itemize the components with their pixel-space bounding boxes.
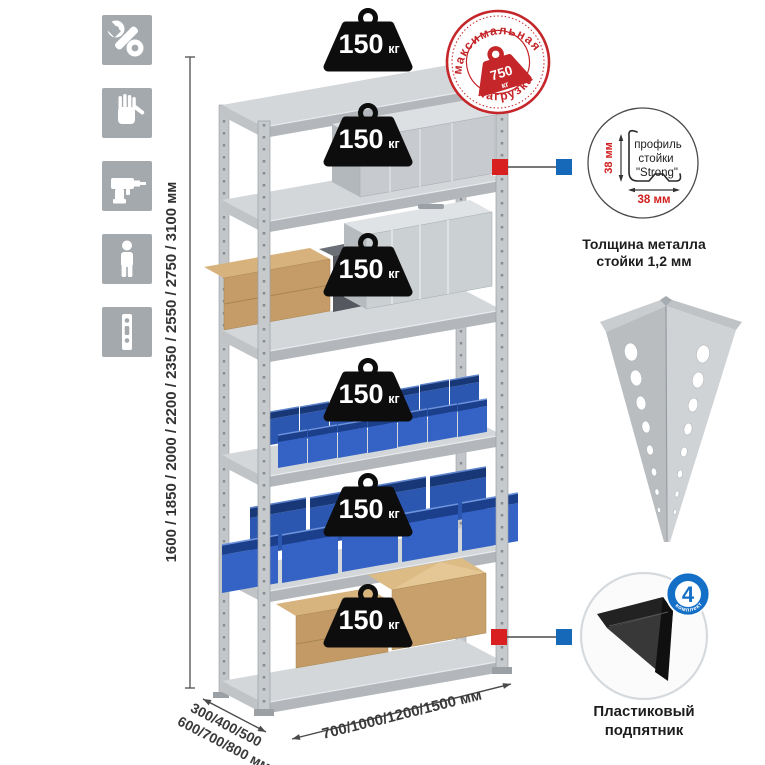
profile-vertical-dim: 38 мм xyxy=(603,142,615,174)
profile-callout-connector xyxy=(492,159,572,175)
blue-marker-top xyxy=(556,159,572,175)
badge-number: 4 xyxy=(682,582,695,607)
shelving-scene: 150кг 150кг 150кг 150кг 150кг 150кг макс… xyxy=(0,0,765,765)
red-marker-bottom xyxy=(491,629,507,645)
foot-caption-line1: Пластиковый xyxy=(559,702,729,721)
height-dimension xyxy=(185,57,195,688)
load-value: 150 xyxy=(338,124,383,154)
profile-horizontal-dim: 38 мм xyxy=(637,194,670,206)
red-marker-top xyxy=(492,159,508,175)
infographic-stage: 150кг 150кг 150кг 150кг 150кг 150кг макс… xyxy=(0,0,765,765)
profile-caption-line1: Толщина металла xyxy=(559,236,729,253)
blue-marker-bottom xyxy=(556,629,572,645)
profile-caption-line2: стойки 1,2 мм xyxy=(559,253,729,270)
load-value: 150 xyxy=(338,254,383,284)
load-unit: кг xyxy=(388,42,399,56)
load-unit: кг xyxy=(388,618,399,632)
profile-label-2: стойки xyxy=(638,153,673,165)
profile-label-1: профиль xyxy=(634,139,682,151)
load-value: 150 xyxy=(338,494,383,524)
height-options-label: 1600 / 1850 / 2000 / 2200 / 2350 / 2550 … xyxy=(163,182,180,563)
angle-post-image xyxy=(600,296,742,542)
profile-label-3: "Strong" xyxy=(636,167,678,179)
foot-callout-connector xyxy=(491,629,572,645)
load-value: 150 xyxy=(338,29,383,59)
load-unit: кг xyxy=(388,137,399,151)
included-count-badge: 4 в комплекте xyxy=(667,573,710,616)
foot-caption-line2: подпятник xyxy=(559,721,729,740)
load-unit: кг xyxy=(388,392,399,406)
load-value: 150 xyxy=(338,379,383,409)
load-unit: кг xyxy=(388,507,399,521)
load-badge-1: 150кг xyxy=(328,11,408,68)
load-badge-4: 150кг xyxy=(328,361,408,418)
load-unit: кг xyxy=(388,267,399,281)
plastic-foot-detail: 4 в комплекте xyxy=(581,573,710,700)
foot-caption: Пластиковый подпятник xyxy=(559,702,729,740)
profile-detail-circle: 38 мм 38 мм профиль стойки "Strong" xyxy=(588,108,698,218)
load-value: 150 xyxy=(338,605,383,635)
profile-caption: Толщина металла стойки 1,2 мм xyxy=(559,236,729,270)
